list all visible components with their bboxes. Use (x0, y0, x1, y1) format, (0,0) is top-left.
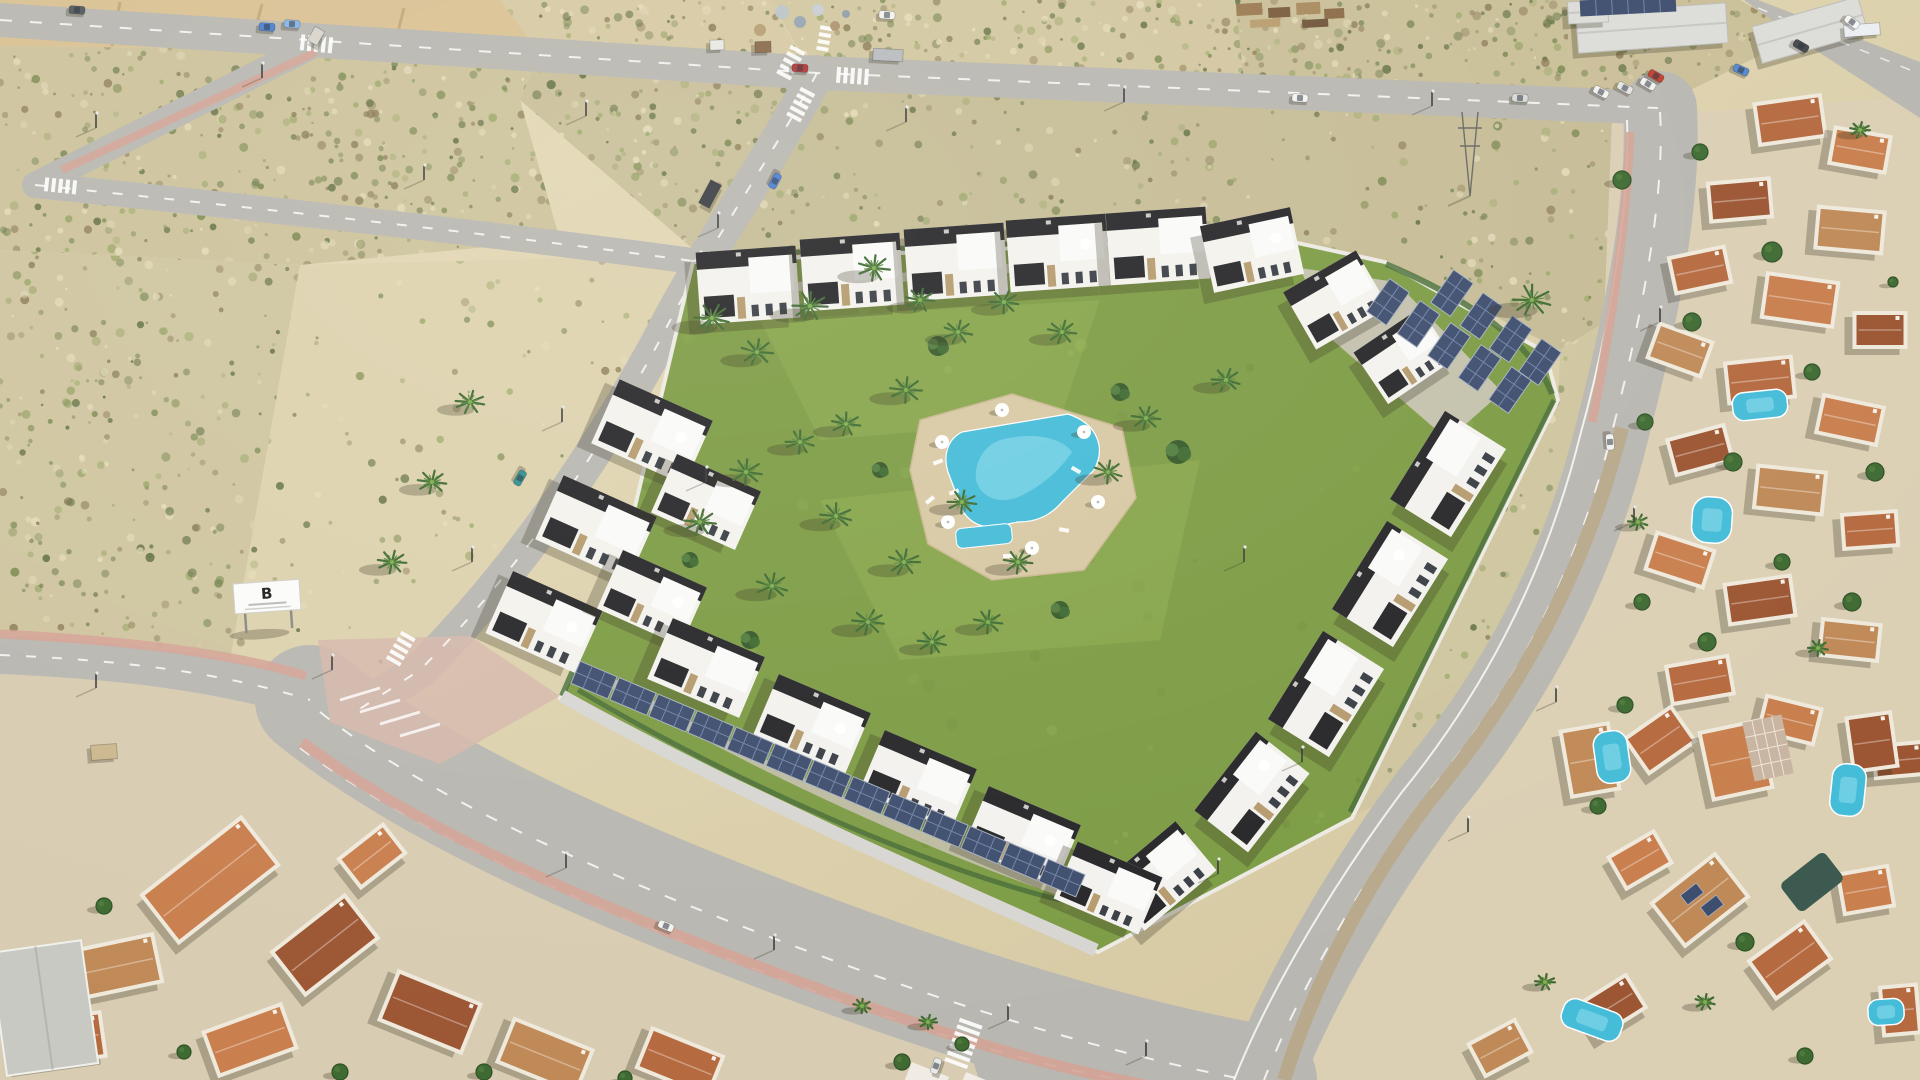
light-overlay (0, 0, 1920, 1080)
scene-svg: B (0, 0, 1920, 1080)
aerial-photo: B (0, 0, 1920, 1080)
